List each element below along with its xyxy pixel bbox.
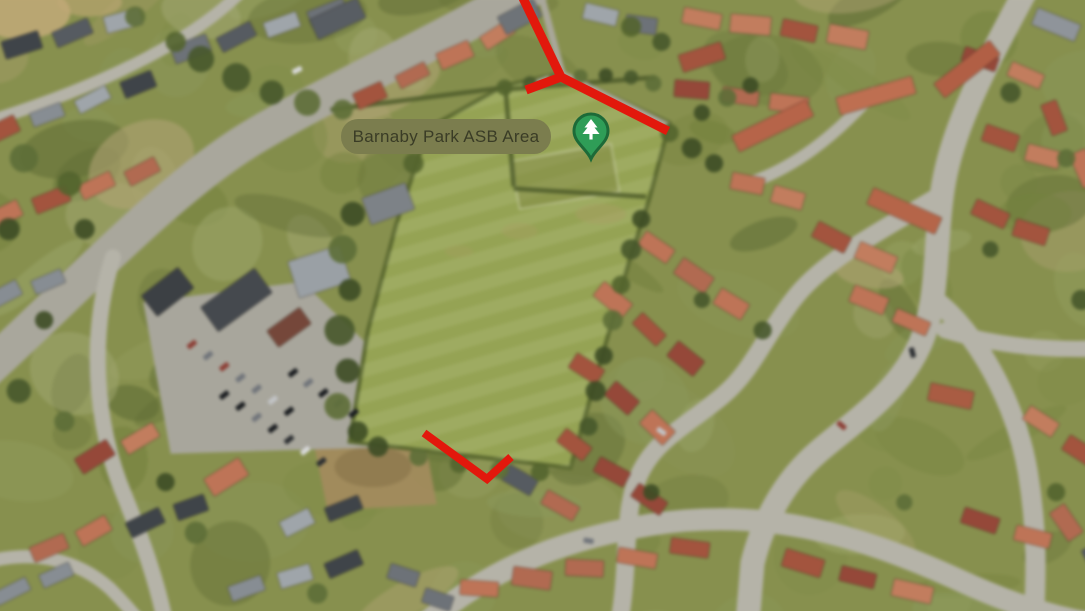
asb-boundary-annotations <box>424 0 668 479</box>
asb-area-label-text: Barnaby Park ASB Area <box>353 127 540 147</box>
aerial-map-view: Barnaby Park ASB Area <box>0 0 1085 611</box>
annotation-layer <box>0 0 1085 611</box>
south-boundary-red-line[interactable] <box>424 433 511 479</box>
north-boundary-red-tick[interactable] <box>526 77 561 90</box>
north-boundary-red-line[interactable] <box>521 0 668 131</box>
asb-area-label[interactable]: Barnaby Park ASB Area <box>341 119 551 154</box>
park-marker[interactable] <box>574 114 608 159</box>
